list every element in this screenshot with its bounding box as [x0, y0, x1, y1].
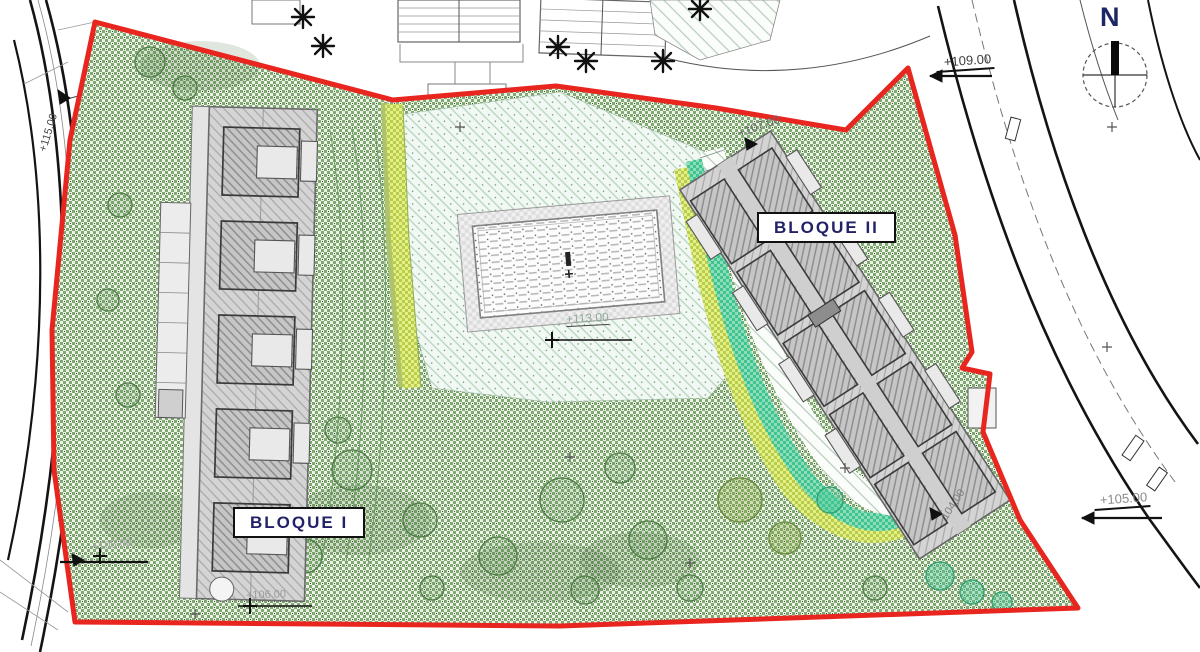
- site-plan: N BLOQUE I BLOQUE II +115.00 +109.00 +10…: [0, 0, 1200, 652]
- elevation-pool-terrace: +113.00: [566, 311, 610, 327]
- north-parking: [252, 0, 930, 100]
- bloque-ii-label: BLOQUE II: [757, 212, 896, 243]
- site-plan-drawing: [0, 0, 1200, 652]
- north-arrow: [1083, 41, 1147, 107]
- elevation-path-south-west: +106.00: [246, 589, 286, 601]
- bloque-i-label: BLOQUE I: [233, 507, 365, 538]
- north-label: N: [1100, 2, 1121, 33]
